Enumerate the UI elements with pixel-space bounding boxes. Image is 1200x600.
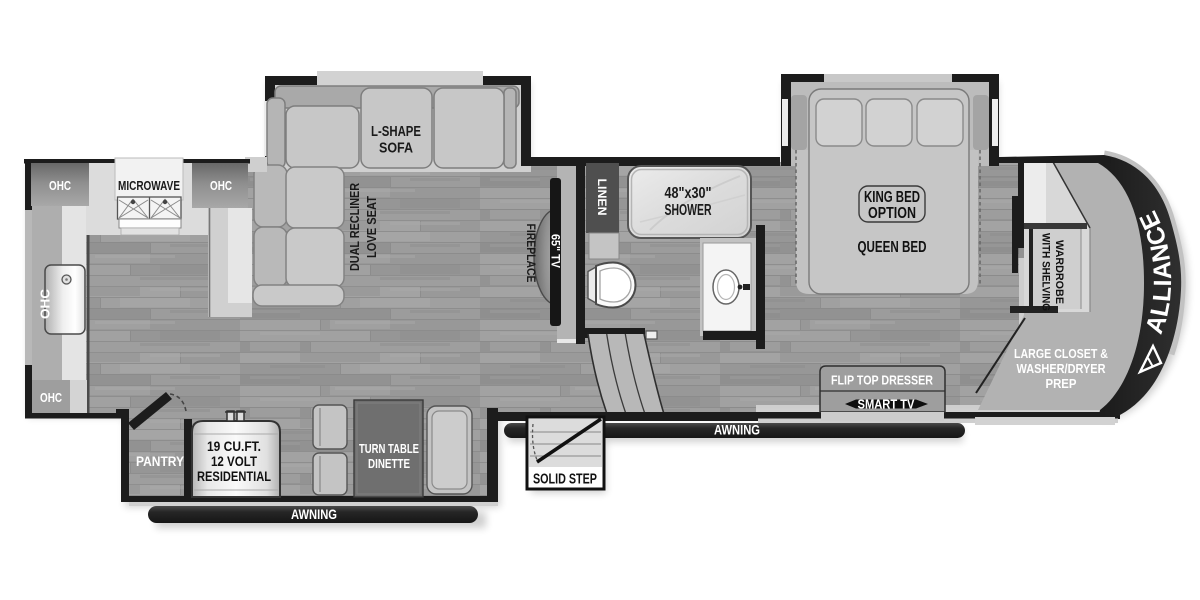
svg-text:SOFA: SOFA (379, 140, 413, 157)
svg-text:OHC: OHC (49, 178, 71, 193)
svg-text:QUEEN BED: QUEEN BED (858, 239, 927, 256)
svg-text:OPTION: OPTION (868, 205, 916, 222)
svg-text:AWNING: AWNING (714, 422, 760, 438)
svg-text:WASHER/DRYER: WASHER/DRYER (1017, 361, 1107, 376)
svg-text:19 CU.FT.: 19 CU.FT. (207, 439, 261, 454)
svg-text:SMART TV: SMART TV (858, 398, 916, 412)
svg-text:65" TV: 65" TV (549, 234, 563, 268)
svg-text:KING BED: KING BED (864, 189, 920, 206)
svg-text:WARDROBE: WARDROBE (1053, 240, 1065, 304)
svg-text:FIREPLACE: FIREPLACE (524, 224, 538, 283)
svg-text:WITH SHELVING: WITH SHELVING (1040, 233, 1052, 311)
svg-text:FLIP TOP DRESSER: FLIP TOP DRESSER (831, 373, 933, 388)
svg-text:LOVE SEAT: LOVE SEAT (364, 196, 379, 258)
svg-text:OHC: OHC (39, 289, 53, 319)
svg-text:MICROWAVE: MICROWAVE (118, 178, 180, 193)
svg-text:RESIDENTIAL: RESIDENTIAL (197, 469, 271, 484)
svg-text:SHOWER: SHOWER (665, 202, 712, 219)
svg-text:PREP: PREP (1046, 376, 1077, 391)
svg-text:OHC: OHC (210, 178, 232, 193)
svg-text:DUAL RECLINER: DUAL RECLINER (347, 182, 362, 271)
svg-text:AWNING: AWNING (291, 506, 337, 522)
svg-text:LARGE CLOSET &: LARGE CLOSET & (1014, 346, 1108, 361)
svg-text:PANTRY: PANTRY (136, 454, 184, 469)
svg-text:SOLID STEP: SOLID STEP (533, 472, 597, 488)
svg-text:TURN TABLE: TURN TABLE (359, 441, 419, 456)
svg-text:LINEN: LINEN (595, 179, 607, 216)
svg-text:OHC: OHC (40, 391, 62, 405)
svg-text:12 VOLT: 12 VOLT (211, 454, 258, 469)
svg-text:48"x30": 48"x30" (665, 185, 712, 202)
svg-text:L-SHAPE: L-SHAPE (371, 123, 421, 140)
svg-text:DINETTE: DINETTE (368, 456, 410, 471)
